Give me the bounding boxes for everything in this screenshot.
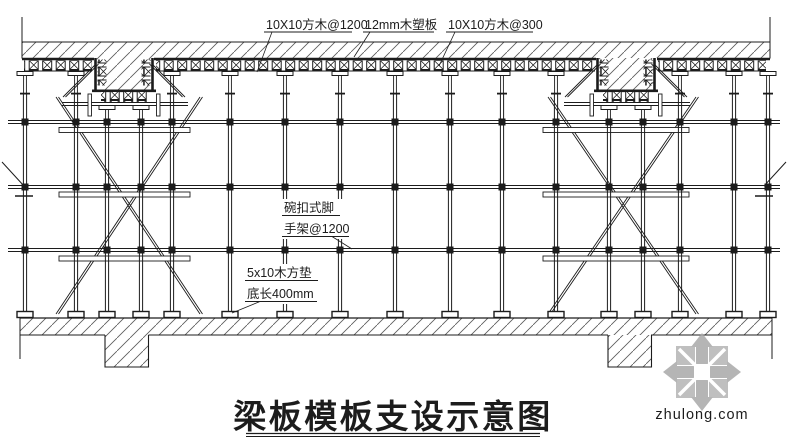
timber-row-300 (24, 61, 92, 71)
beam-support-post (635, 106, 651, 318)
label-scaffold-line1: 碗扣式脚 (284, 200, 334, 215)
formwork-diagram: 10X10方木@1200 12mm木塑板 10X10方木@300 碗扣式脚 手架… (0, 0, 788, 441)
formwork-diagram-svg: 10X10方木@1200 12mm木塑板 10X10方木@300 碗扣式脚 手架… (0, 0, 788, 441)
label-pad-line2: 底长400mm (247, 286, 314, 301)
label-timber-1200: 10X10方木@1200 (266, 17, 368, 32)
diagram-title: 梁板模板支设示意图 (233, 398, 553, 435)
scaffold-planks (59, 128, 689, 262)
beam-support-post (133, 106, 149, 318)
timber-row-300 (658, 61, 766, 71)
label-plank-12mm: 12mm木塑板 (365, 17, 438, 32)
watermark-text: zhulong.com (655, 407, 748, 423)
timber-row-300 (156, 61, 595, 71)
beam-support-post (99, 106, 115, 318)
lower-beam-left (105, 335, 149, 367)
label-timber-300: 10X10方木@300 (448, 17, 543, 32)
watermark-logo (663, 333, 741, 411)
diagram-title-block: 梁板模板支设示意图 (233, 398, 553, 437)
lower-beam-right (608, 335, 652, 367)
beam-support-post (601, 106, 617, 318)
label-scaffold-line2: 手架@1200 (284, 222, 350, 236)
label-pad-line1: 5x10木方垫 (247, 265, 312, 280)
break-marks (2, 162, 786, 196)
